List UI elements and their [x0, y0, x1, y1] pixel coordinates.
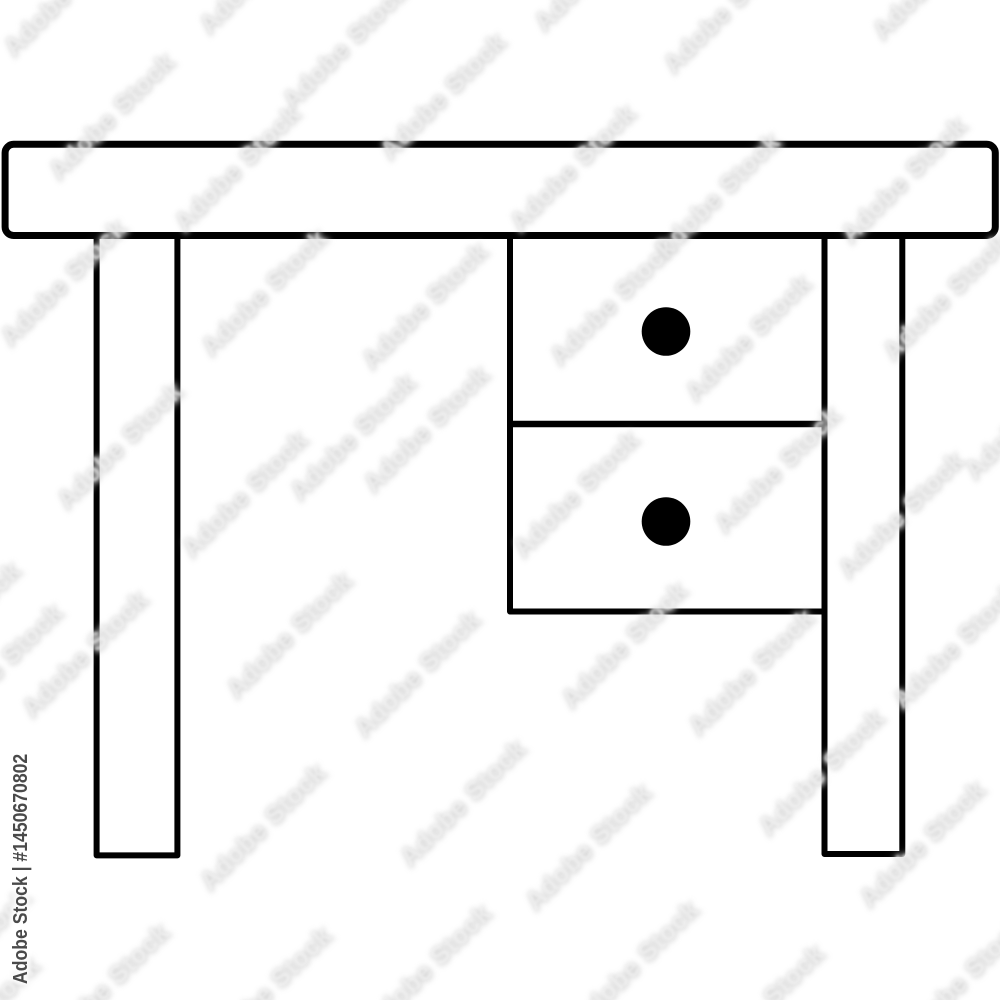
- svg-text:Adobe Stock | #1450670802: Adobe Stock | #1450670802: [10, 754, 33, 984]
